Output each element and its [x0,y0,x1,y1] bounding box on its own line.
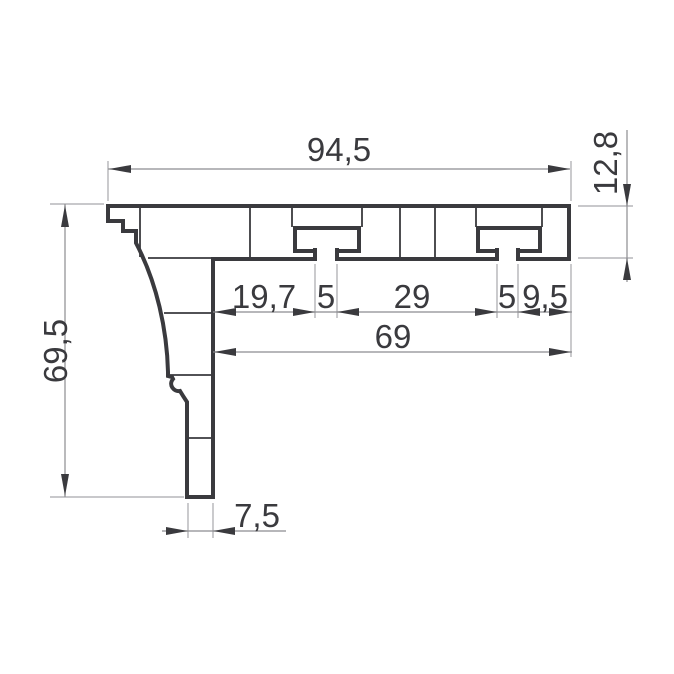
arrowhead-right [548,165,570,173]
arrowhead-top [623,184,631,206]
dim-label-leg-to-slot1: 19,7 [232,278,296,315]
arrowhead-right [549,348,571,356]
dim-label-slot1-opening: 5 [317,278,335,315]
dim-leg-thickness: 7,5 [162,497,286,538]
dim-label-overall-height: 69,5 [37,319,74,383]
dim-label-leg-thickness: 7,5 [234,497,280,534]
dim-overall-width: 94,5 [108,131,571,201]
arrowhead [475,308,497,316]
dim-overall-height: 69,5 [37,204,184,497]
arrowhead-bottom [61,474,69,496]
dim-top-bar-thickness: 12,8 [578,130,633,282]
dim-label-inner-width: 69 [375,318,412,355]
arrowhead-left [166,527,188,535]
dim-inner-width: 69 [213,318,572,356]
dim-label-slot2-to-right-edge: 9,5 [522,278,568,315]
dim-label-top-bar-thickness: 12,8 [587,131,624,195]
dim-label-overall-width: 94,5 [307,131,371,168]
dim-label-slot1-to-slot2: 29 [394,278,431,315]
arrowhead-bottom [623,258,631,280]
arrowhead [337,308,359,316]
extension-lines [578,206,633,258]
arrowhead-left [214,348,236,356]
profile-web-lines [140,208,542,438]
arrowhead-right [213,527,235,535]
extension-lines [188,503,213,538]
arrowhead [293,308,315,316]
dim-label-slot2-opening: 5 [498,278,516,315]
technical-drawing-canvas: 94,5 12,8 69,5 19,7 5 29 5 9,5 69 [0,0,674,674]
arrowhead-top [61,205,69,227]
arrowhead-left [109,165,131,173]
